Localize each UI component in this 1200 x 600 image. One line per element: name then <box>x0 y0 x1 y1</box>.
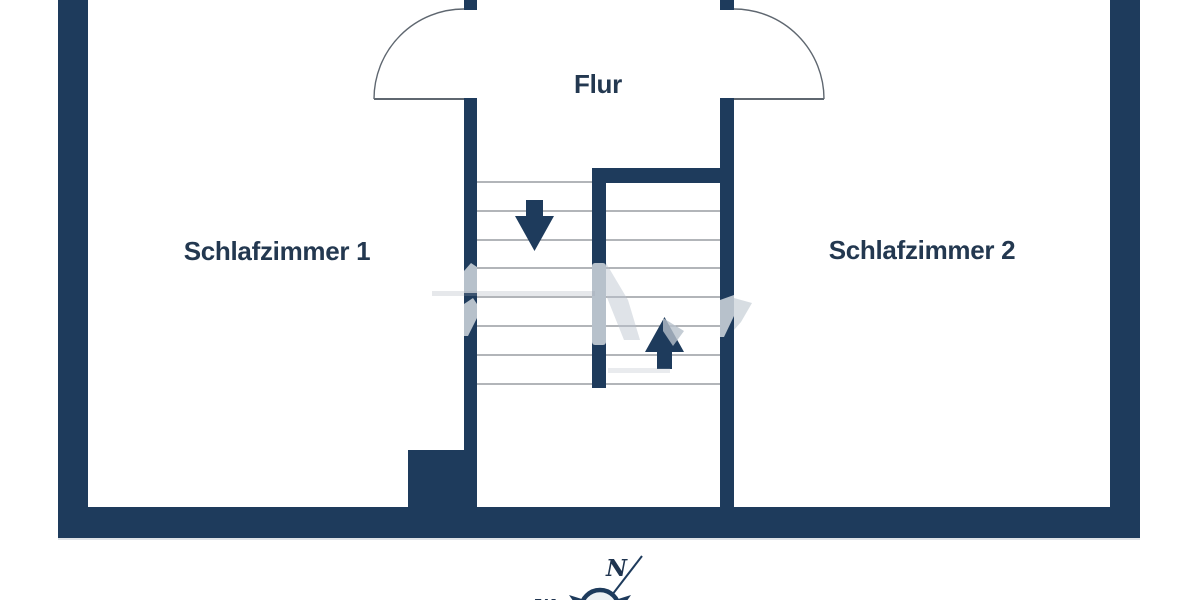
compass-needle <box>612 556 642 595</box>
stair-wall-right <box>720 98 734 507</box>
door-swing-arc <box>374 9 464 99</box>
outer-wall-bottom <box>58 507 1140 538</box>
stairs-up-arrow-icon <box>645 317 684 369</box>
watermark-fragment <box>608 368 670 373</box>
floor-plan: N W Schlafzimmer 1 Schlafzimmer 2 Flur <box>0 0 1200 600</box>
compass-north-label: N <box>605 555 628 582</box>
outer-wall-right <box>1110 0 1140 538</box>
stair-mid-wall <box>592 168 606 388</box>
room-label-bedroom2: Schlafzimmer 2 <box>772 235 1072 265</box>
compass-circle <box>581 590 619 600</box>
chimney-block <box>408 450 464 507</box>
compass-rose-icon: N W <box>534 555 642 600</box>
watermark-fragment <box>432 291 595 296</box>
watermark-fragment <box>663 318 684 346</box>
outer-wall-left <box>58 0 88 538</box>
bottom-wall-shadow <box>58 538 1140 540</box>
stair-wall-right-stub <box>720 0 734 10</box>
stair-mid-wall-cap <box>592 168 734 183</box>
door-right <box>734 9 824 99</box>
door-swing-arc <box>734 9 824 99</box>
compass-west-label: W <box>534 596 556 600</box>
stairs-down-arrow-icon <box>515 200 554 251</box>
room-label-hallway: Flur <box>538 69 658 99</box>
watermark-fragment <box>606 263 640 340</box>
watermark-fragment <box>734 298 752 330</box>
door-left <box>374 9 464 99</box>
room-label-bedroom1: Schlafzimmer 1 <box>127 236 427 266</box>
stair-treads-right <box>606 211 720 384</box>
stair-wall-left <box>464 98 477 507</box>
compass-spike-west <box>569 595 585 600</box>
compass-spike-east <box>615 595 631 600</box>
stair-treads-left <box>477 182 592 384</box>
stair-wall-left-stub <box>464 0 477 10</box>
